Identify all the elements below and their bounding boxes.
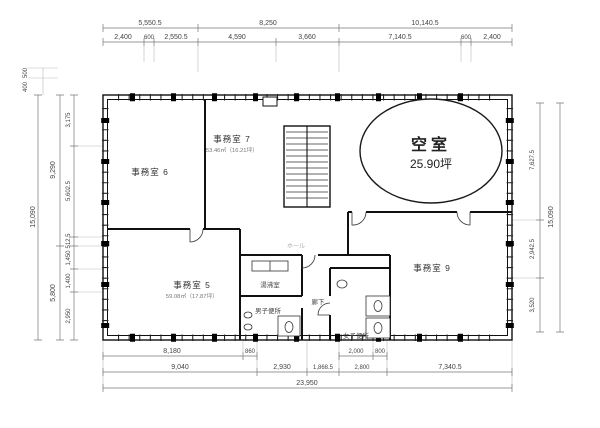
dim-label: 512.5	[66, 233, 72, 249]
dim-label: 400	[23, 81, 29, 92]
room-label-office6: 事務室 6	[131, 167, 169, 177]
dim-label: 15,090	[30, 206, 37, 228]
dim-label: 5,602.5	[66, 180, 72, 201]
dim-label: 2,950	[66, 308, 72, 324]
room-label-office5: 事務室 5	[173, 280, 211, 290]
dim-label: 800	[375, 349, 386, 355]
room-area-office7: 53.46㎡（16.21坪）	[206, 146, 258, 154]
dim-label: 860	[245, 349, 256, 355]
floor-plan-drawing: 5,550.5 8,250 10,140.5 2,400 600 2,550.5…	[0, 0, 600, 428]
room-label-office7: 事務室 7	[213, 134, 251, 144]
dim-label: 15,090	[548, 206, 555, 228]
vacancy-bubble: 空室 25.90坪	[360, 99, 502, 203]
dim-label: 10,140.5	[411, 20, 438, 27]
dim-label: 2,550.5	[164, 34, 187, 41]
dim-label: 7,627.5	[530, 149, 536, 170]
urinal	[244, 324, 252, 330]
dim-total-label: 23,950	[296, 380, 318, 387]
room-label-office9: 事務室 9	[413, 263, 451, 273]
dim-label: 2,400	[114, 34, 132, 41]
dim-label: 2,800	[354, 365, 370, 371]
dim-label: 3,660	[298, 34, 316, 41]
dim-label: 3,175	[66, 112, 72, 128]
room-label-kitchenette: 湯沸室	[260, 280, 280, 289]
dim-label: 600	[144, 35, 155, 41]
dim-label: 2,930	[273, 364, 291, 371]
dim-label: 4,590	[228, 34, 246, 41]
vacancy-name: 空室	[411, 135, 451, 154]
dim-label: 1,400	[66, 273, 72, 289]
dim-label: 2,942.5	[530, 238, 536, 259]
dim-label: 5,550.5	[138, 20, 161, 27]
roof-access-box	[263, 97, 277, 106]
dim-label: 600	[461, 35, 472, 41]
dim-label: 500	[23, 67, 29, 78]
dim-label: 2,000	[348, 349, 364, 355]
room-area-office5: 59.08㎡（17.87坪）	[166, 292, 218, 300]
dim-label: 8,250	[259, 20, 277, 27]
wash-basin	[337, 280, 347, 288]
room-label-womens-toilet: 女子便所	[343, 331, 370, 340]
dim-label: 1,868.5	[313, 365, 334, 371]
room-label-corridor: 廊下	[312, 297, 326, 306]
floorplan-page: 5,550.5 8,250 10,140.5 2,400 600 2,550.5…	[0, 0, 600, 428]
dim-label: 7,340.5	[438, 364, 461, 371]
dim-label: 9,040	[171, 364, 189, 371]
room-label-mens-toilet: 男子便所	[255, 306, 282, 315]
dim-label: 5,800	[50, 284, 57, 302]
dim-left	[34, 95, 78, 340]
vacancy-area: 25.90坪	[410, 157, 452, 171]
dim-label: 3,520	[530, 297, 536, 313]
urinal	[244, 312, 252, 318]
dim-label: 1,450	[66, 250, 72, 266]
dim-label: 2,400	[483, 34, 501, 41]
dim-label: 7,140.5	[388, 34, 411, 41]
room-label-hall: ホール	[287, 243, 305, 250]
stairwell	[284, 126, 330, 207]
dim-label: 8,180	[163, 348, 181, 355]
dim-label: 9,290	[50, 161, 57, 179]
